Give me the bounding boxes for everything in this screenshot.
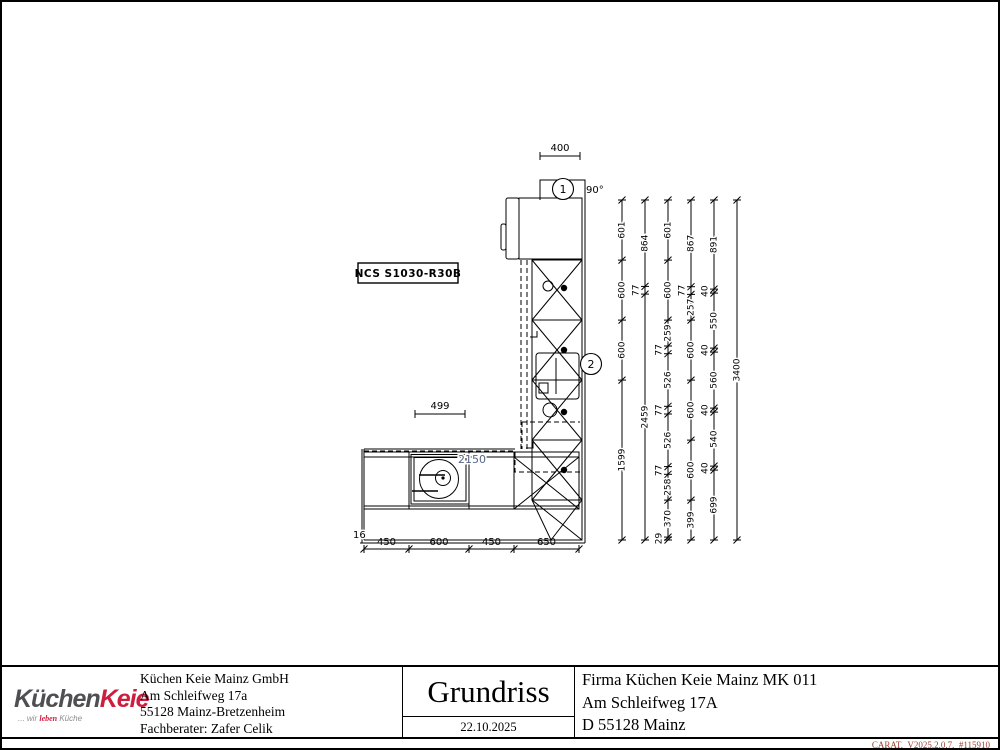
- cabinet-box: [532, 320, 582, 380]
- dim-label-wall-16: 16: [353, 530, 366, 541]
- floor-plan-drawing: 400 499 2150 16 90° 1 2 NCS S1030-R30B 6…: [2, 2, 1000, 750]
- dim-label: 258: [664, 478, 674, 495]
- right-cabinet-run: [526, 260, 582, 540]
- customer-line: D 55128 Mainz: [582, 714, 998, 737]
- dim-hob-499: 499: [415, 401, 465, 418]
- dim-label: 77: [655, 344, 665, 355]
- dim-label: 40: [701, 285, 711, 297]
- company-line: Am Schleifweg 17a: [140, 688, 289, 705]
- dim-chain-bottom: 450600450650: [361, 537, 583, 553]
- dim-label: 77: [632, 285, 642, 296]
- socket-symbol: [543, 281, 553, 291]
- sink-cabinet: [532, 353, 582, 440]
- carat-version-footer: CARAT, V2025.2.0.7, #115910: [872, 740, 990, 750]
- dim-label: 77: [655, 404, 665, 415]
- document-date: 22.10.2025: [460, 720, 516, 735]
- dim-label: 600: [618, 281, 628, 298]
- kuechen-keie-logo: KüchenKeie ... wir leben Küche: [14, 687, 149, 723]
- position-marker-2: 2: [581, 354, 602, 375]
- dim-chain-3: 60160025977526775267725837029: [655, 197, 674, 545]
- dim-label: 370: [664, 510, 674, 527]
- dim-label: 3400: [733, 358, 743, 381]
- company-address: Küchen Keie Mainz GmbH Am Schleifweg 17a…: [140, 671, 289, 737]
- dim-label: 600: [429, 537, 448, 548]
- socket-symbol: [561, 409, 567, 415]
- dim-label-top: 400: [550, 143, 569, 154]
- dim-label: 399: [687, 511, 697, 528]
- logo-tagline: ... wir leben Küche: [18, 715, 149, 723]
- hinge-mark: [530, 331, 537, 337]
- dim-label: 650: [537, 537, 556, 548]
- title-block-company-cell: KüchenKeie ... wir leben Küche Küchen Ke…: [2, 667, 402, 737]
- dim-label: 257: [687, 299, 697, 316]
- dim-label: 450: [377, 537, 396, 548]
- dim-label: 891: [710, 236, 720, 253]
- fridge-unit: [501, 198, 582, 259]
- dim-label: 526: [664, 431, 674, 448]
- dim-label: 77: [655, 465, 665, 476]
- customer-address: Firma Küchen Keie Mainz MK 011 Am Schlei…: [575, 667, 998, 737]
- dim-chain-2: 864772459: [632, 197, 651, 544]
- dim-label: 600: [618, 341, 628, 358]
- dim-top-400: 400: [540, 143, 580, 160]
- ncs-color-label: NCS S1030-R30B: [355, 263, 462, 283]
- customer-line: Firma Küchen Keie Mainz MK 011: [582, 669, 998, 692]
- dim-label: 29: [655, 533, 665, 545]
- title-block-customer-cell: Firma Küchen Keie Mainz MK 011 Am Schlei…: [575, 667, 998, 737]
- company-line: 55128 Mainz-Bretzenheim: [140, 704, 289, 721]
- socket-symbol: [561, 347, 567, 353]
- dim-chain-4: 86777257600600600399: [678, 197, 697, 544]
- dim-label: 600: [664, 281, 674, 298]
- company-line: Küchen Keie Mainz GmbH: [140, 671, 289, 688]
- dim-label: 526: [664, 371, 674, 388]
- logo-text-kuechen: Küchen: [14, 685, 100, 713]
- dim-label: 601: [618, 221, 628, 238]
- walls: [360, 180, 585, 543]
- company-line: Fachberater: Zafer Celik: [140, 721, 289, 738]
- svg-text:1: 1: [560, 183, 567, 196]
- title-block: KüchenKeie ... wir leben Küche Küchen Ke…: [2, 665, 998, 739]
- dim-label: 1599: [618, 448, 628, 471]
- dim-label-run-total: 2150: [458, 453, 486, 466]
- dim-label-hob: 499: [430, 401, 449, 412]
- dim-label: 601: [664, 221, 674, 238]
- svg-text:NCS S1030-R30B: NCS S1030-R30B: [355, 268, 462, 280]
- dim-label: 864: [641, 234, 651, 251]
- dim-label: 600: [687, 461, 697, 478]
- dim-label: 560: [710, 371, 720, 388]
- dim-label: 540: [710, 430, 720, 447]
- dim-label: 40: [701, 344, 711, 356]
- dim-label: 867: [687, 235, 697, 252]
- dim-label: 40: [701, 404, 711, 416]
- dim-label: 259: [664, 324, 674, 341]
- angle-label: 90°: [586, 185, 604, 196]
- dim-label: 450: [482, 537, 501, 548]
- position-marker-1: 1: [553, 179, 574, 200]
- dim-chain-5: 89140550405604054040699: [701, 197, 720, 544]
- socket-symbol: [561, 285, 567, 291]
- dim-label: 699: [710, 496, 720, 513]
- dim-label: 2459: [641, 405, 651, 428]
- cabinet-box: [532, 260, 582, 320]
- customer-line: Am Schleifweg 17A: [582, 692, 998, 715]
- document-title: Grundriss: [427, 674, 549, 710]
- dim-chain-1: 6016006001599: [618, 197, 628, 544]
- plan-sheet: 400 499 2150 16 90° 1 2 NCS S1030-R30B 6…: [0, 0, 1000, 750]
- svg-text:2: 2: [588, 358, 595, 371]
- dim-label: 550: [710, 312, 720, 329]
- title-block-title-cell: Grundriss 22.10.2025: [402, 667, 575, 737]
- dim-label: 77: [678, 285, 688, 296]
- dim-label: 40: [701, 462, 711, 474]
- dim-chain-6: 3400: [733, 197, 743, 544]
- dim-label: 600: [687, 401, 697, 418]
- dim-label: 600: [687, 341, 697, 358]
